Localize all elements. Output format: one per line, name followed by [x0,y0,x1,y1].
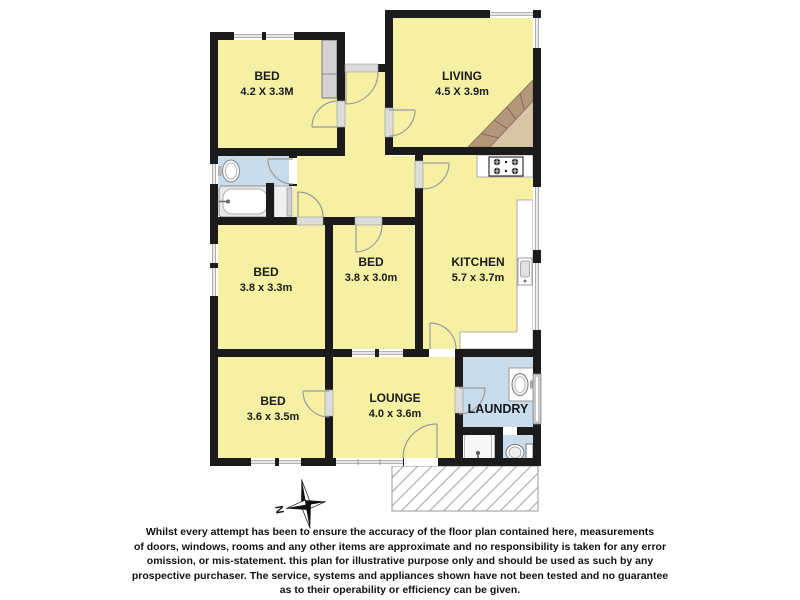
room-dims-kitchen: 5.7 x 3.7m [452,272,505,284]
disclaimer-text: Whilst every attempt has been to ensure … [0,525,800,598]
compass-north-label: N [274,505,287,515]
room-label-bed2: BED [253,265,279,279]
window-icon [533,187,541,250]
wardrobe-icon [322,40,337,98]
room-dims-bed3: 3.8 x 3.0m [345,272,398,284]
window-icon [210,164,218,184]
deck-area [392,466,538,511]
window-icon [490,10,533,18]
cooktop-icon [489,157,523,176]
disclaimer-line: Whilst every attempt has been to ensure … [0,525,800,540]
room-dims-bed1: 4.2 X 3.3M [240,86,293,98]
window-icon [533,263,541,330]
window-icon [266,32,294,40]
corridor-floor [293,156,423,217]
window-icon [234,32,262,40]
room-dims-bed2: 3.8 x 3.3m [240,282,293,294]
room-dims-bed4: 3.6 x 3.5m [247,411,300,423]
linen-cupboard-icon [274,186,292,218]
floor-plan-drawing: N BED 4.2 X 3.3M LIVING 4.5 X 3.9m BED 3… [0,0,800,600]
bathtub-icon [219,186,270,217]
room-bed3-floor [333,221,415,349]
deck-hatch [392,466,538,511]
room-label-kitchen: KITCHEN [451,255,504,269]
kitchen-sink-icon [518,258,532,285]
window-icon [210,268,218,296]
floor-plan-page: N BED 4.2 X 3.3M LIVING 4.5 X 3.9m BED 3… [0,0,800,600]
window-icon [336,458,403,466]
sliding-door-icon [533,374,541,424]
disclaimer-line: omission, or mis-statement. this plan fo… [0,554,800,569]
window-icon [210,244,218,263]
window-icon [352,349,375,357]
room-label-bed1: BED [254,69,280,83]
room-label-lounge: LOUNGE [369,391,420,405]
room-label-living: LIVING [442,69,482,83]
disclaimer-line: prospective purchaser. The service, syst… [0,569,800,584]
room-label-bed4: BED [260,394,286,408]
laundry-basin-icon [509,368,534,401]
wc-opening [503,427,517,435]
window-icon [533,18,541,48]
window-icon [279,458,301,466]
disclaimer-line: of doors, windows, rooms and any other i… [0,540,800,555]
disclaimer-line: as to their operability or efficiency ca… [0,583,800,598]
room-kitchen-floor [423,151,533,349]
room-dims-living: 4.5 X 3.9m [435,86,489,98]
room-label-laundry: LAUNDRY [468,402,529,416]
room-label-bed3: BED [358,255,384,269]
window-icon [251,458,275,466]
room-dims-lounge: 4.0 x 3.6m [369,408,422,420]
window-icon [379,349,403,357]
